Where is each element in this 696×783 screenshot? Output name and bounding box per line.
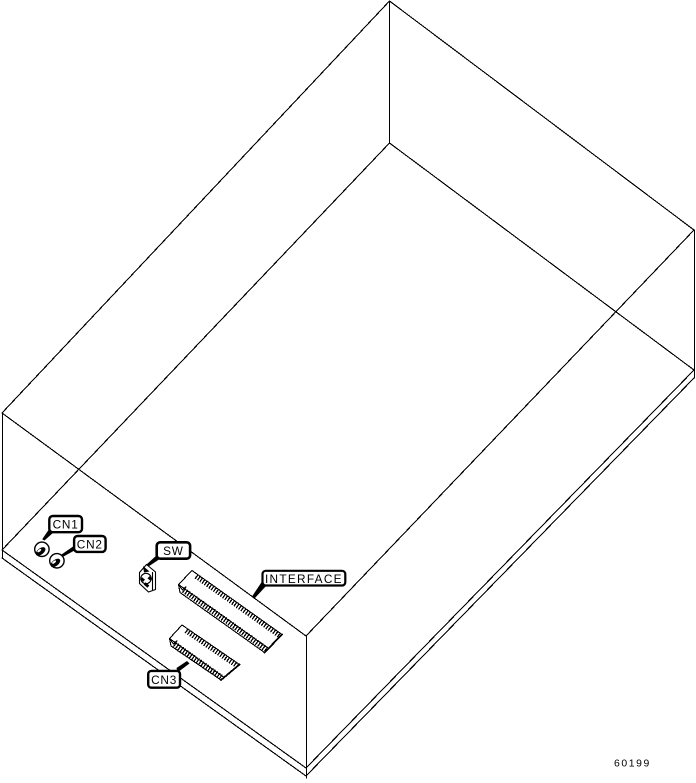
svg-text:CN3: CN3: [151, 673, 177, 687]
svg-text:CN1: CN1: [53, 517, 79, 531]
svg-text:60199: 60199: [614, 759, 651, 770]
svg-text:CN2: CN2: [77, 537, 103, 551]
svg-text:INTERFACE: INTERFACE: [265, 572, 343, 586]
svg-text:SW: SW: [163, 544, 184, 558]
